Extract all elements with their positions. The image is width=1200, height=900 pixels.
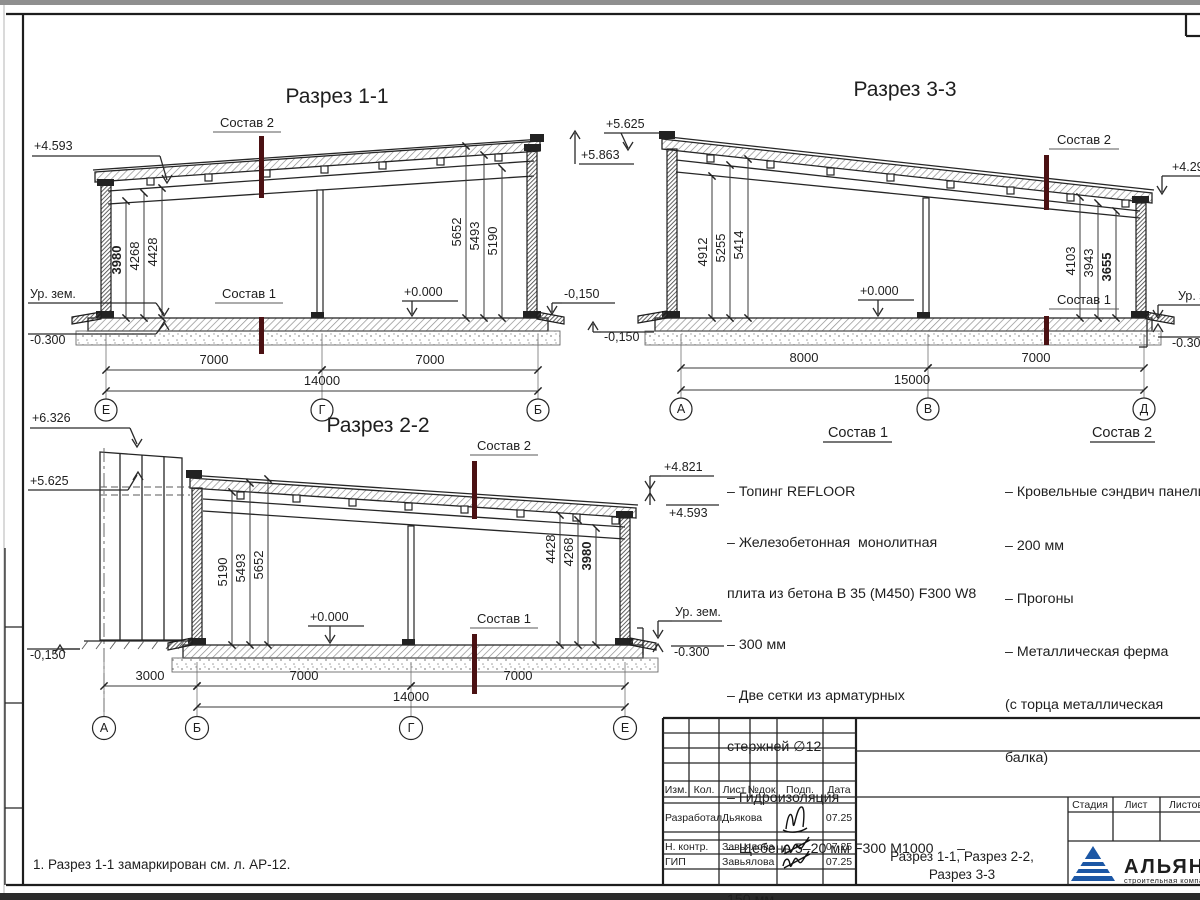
dim: 5652 [449,218,464,247]
floor-slab [183,645,643,658]
axis-label: Г [319,403,326,417]
dim: 7000 [416,352,445,367]
dim: 15000 [894,372,930,387]
elevation-label: +4.593 [669,506,708,520]
elevation-label: -0,150 [30,648,65,662]
elevation-label: +4.593 [34,139,73,153]
dim: 4103 [1063,247,1078,276]
logo-subtext: строительная компания [1124,876,1200,885]
axis-bubbles: Е Г Б [95,399,549,421]
scan-edge-top [0,0,1200,5]
axis-label: Б [534,403,542,417]
dim: 8000 [790,350,819,365]
dim: 5190 [215,558,230,587]
callout-mark [472,634,477,694]
dim: 7000 [290,668,319,683]
elevation-label: +0.000 [310,610,349,624]
sostav2-line: балка) [1005,750,1200,768]
axis-bubbles: А В Д [670,398,1155,420]
section-3-3: Разрез 3-3 4912 5255 5414 4103 3943 3655… [588,78,1200,420]
dim: 3943 [1081,249,1096,278]
callout-sostav2: Состав 2 [1057,132,1111,147]
section-1-1: Разрез 1-1 3980 4268 4428 5652 5493 5190 [28,85,634,421]
callout-mark [259,136,264,198]
axis-label: Г [408,721,415,735]
sostav1-list: – Топинг REFLOOR – Железобетонная моноли… [727,450,976,900]
sub-base [172,658,658,672]
tb-col-izm: Изм. [665,784,688,796]
ground-level-label: Ур. зем. [1178,289,1200,303]
sostav1-line: стержней ∅12 [727,739,976,756]
elevation-label: +5.625 [30,474,69,488]
elevation-label: -0.300 [674,645,709,659]
column-middle [317,190,323,318]
sub-base [76,331,560,345]
elevation-label: +0.000 [404,285,443,299]
tb-role: Н. контр. [665,841,708,853]
sostav1-line: – Гидроизоляция [727,790,976,807]
wall-left [667,149,677,318]
dim: 3980 [579,542,594,571]
section-2-2: Разрез 2-2 [27,411,724,740]
elevation-label: +6.326 [32,411,71,425]
sostav1-line: – Железобетонная монолитная [727,535,976,552]
dim: 4428 [543,535,558,564]
notes: 1. Разрез 1-1 замаркирован см. л. АР-12.… [33,821,290,900]
tb-stage: Стадия [1072,799,1108,811]
sostav1-line: – Две сетки из арматурных [727,688,976,705]
floor-slab [655,318,1152,331]
dim: 4268 [127,242,142,271]
sostav2-line: – Кровельные сэндвич панели [1005,484,1200,502]
tb-role: Разработал [665,812,722,824]
sostav1-line: – Топинг REFLOOR [727,484,976,501]
logo-text: АЛЬЯНС [1124,856,1200,878]
dim: 7000 [200,352,229,367]
elevation-label: +5.625 [606,117,645,131]
sostav2-heading: Состав 2 [1092,425,1152,441]
dim: 3000 [136,668,165,683]
sostav2-line: – Металлическая ферма [1005,644,1200,662]
ground-level-label: Ур. зем. [30,287,76,301]
callout-mark [1044,316,1049,345]
tb-role: ГИП [665,856,686,868]
callout-sostav1: Состав 1 [477,611,531,626]
elevation-label: -0.300 [30,333,65,347]
sostav2-line: – 200 мм [1005,538,1200,556]
elevation-label: +0.000 [860,284,899,298]
sub-base [645,331,1161,345]
dim: 3980 [109,246,124,275]
axis-label: Е [102,403,110,417]
wall-right [620,518,630,645]
section-2-2-title: Разрез 2-2 [326,414,429,437]
dim: 7000 [504,668,533,683]
elevation-label: +4.293 [1172,160,1200,174]
column-middle [923,198,929,318]
callout-sostav2: Состав 2 [477,438,531,453]
dim: 14000 [304,373,340,388]
dim: 7000 [1022,350,1051,365]
dim: 4428 [145,238,160,267]
sostav1-line: – Щебень 5–20 мм F300 М1000 – [727,841,976,858]
callout-sostav1: Состав 1 [1057,292,1111,307]
sostav2-line: – Прогоны [1005,591,1200,609]
elevation-label: +4.821 [664,460,703,474]
callout-mark [1044,155,1049,210]
tb-sheets: Листов [1169,799,1200,811]
drawing-sheet: Разрез 1-1 3980 4268 4428 5652 5493 5190 [0,0,1200,900]
callout-mark [259,317,264,354]
callout-sostav2: Состав 2 [220,115,274,130]
axis-label: В [924,402,932,416]
sostav1-line: плита из бетона В 35 (М450) F300 W8 [727,586,976,603]
dim: 5493 [233,554,248,583]
column-middle [408,526,414,645]
dim: 5493 [467,222,482,251]
elevation-label: -0.300 [1172,336,1200,350]
sostav1-heading: Состав 1 [828,425,888,441]
dim: 3655 [1099,253,1114,282]
tb-sheet: Лист [1125,799,1148,811]
axis-label: А [677,402,686,416]
wall-right [1136,203,1146,318]
axis-label: Б [193,721,201,735]
dim: 5190 [485,227,500,256]
callout-sostav1: Состав 1 [222,286,276,301]
floor-slab [88,318,548,331]
wall-right [527,151,537,318]
sostav1-line: 150 мм [727,892,976,900]
sostav1-line: – 300 мм [727,637,976,654]
dim: 5652 [251,551,266,580]
section-1-1-title: Разрез 1-1 [285,85,388,108]
elevation-label: -0,150 [564,287,599,301]
dim: 14000 [393,689,429,704]
dim: 5414 [731,231,746,260]
sostav2-line: (с торца металлическая [1005,697,1200,715]
axis-label: Е [621,721,629,735]
company-logo: АЛЬЯНС строительная компания [1069,846,1200,885]
dim: 4912 [695,238,710,267]
wall-left [192,488,202,645]
roof-deck [190,478,636,518]
elevation-label: +5.863 [581,148,620,162]
sostav2-list: – Кровельные сэндвич панели – 200 мм – П… [1005,449,1200,785]
dim: 5255 [713,234,728,263]
axis-label: А [100,721,109,735]
dim: 4268 [561,538,576,567]
axis-label: Д [1140,402,1149,416]
axis-bubbles: А Б Г Е [93,717,637,740]
ground-level-label: Ур. зем. [675,605,721,619]
note-line: 1. Разрез 1-1 замаркирован см. л. АР-12. [33,856,290,873]
callout-mark [472,461,477,519]
section-3-3-title: Разрез 3-3 [853,78,956,101]
tb-col-kol: Кол. [694,784,715,796]
